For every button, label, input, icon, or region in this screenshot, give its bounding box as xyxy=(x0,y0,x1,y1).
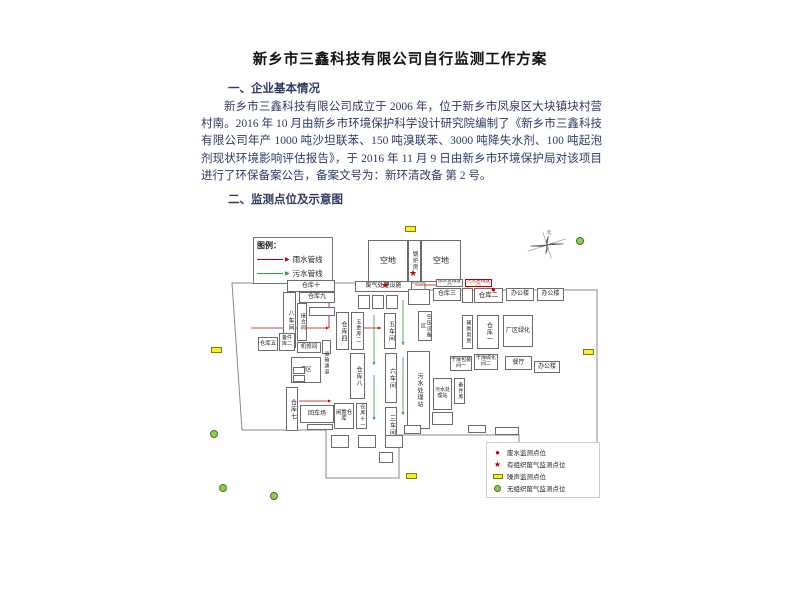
pipe-legend: 图例： ▶雨水管线▶污水管线 xyxy=(253,237,333,284)
building-box: 接合间 xyxy=(297,303,307,341)
building-box: 仓库七 xyxy=(286,387,298,431)
noise-point-marker xyxy=(583,349,594,355)
doc-title: 新乡市三鑫科技有限公司自行监测工作方案 xyxy=(0,48,800,69)
paragraph-body: 新乡市三鑫科技有限公司成立于 2006 年，位于新乡市凤泉区大块镇块村营村南。2… xyxy=(201,99,602,185)
building-box: 空地 xyxy=(421,240,461,282)
pipe-arrow-icon: ▶ xyxy=(285,270,290,277)
fugitive-gas-point-marker xyxy=(219,484,227,492)
pipe-legend-item: ▶污水管线 xyxy=(257,266,329,280)
fugitive-legend-icon xyxy=(494,485,501,492)
building-box: 仓库十一 xyxy=(356,403,367,429)
building-box: 空地 xyxy=(368,240,408,282)
dot-legend-icon: ● xyxy=(495,448,500,457)
building-box: 办公楼 xyxy=(537,288,564,301)
small-unlabeled-box xyxy=(385,435,403,448)
building-box: 闲置仓库 xyxy=(334,403,354,429)
small-unlabeled-box xyxy=(358,295,370,309)
noise-legend-icon xyxy=(493,474,503,479)
small-unlabeled-box xyxy=(432,412,453,425)
small-unlabeled-box xyxy=(293,375,305,382)
building-box: 仓库八 xyxy=(350,353,365,399)
monitoring-legend-label: 无组织废气监测点位 xyxy=(507,483,566,493)
wastewater-point-marker: ● xyxy=(491,286,496,294)
building-box: 机修间 xyxy=(297,342,321,353)
pipe-legend-item: ▶雨水管线 xyxy=(257,252,329,266)
building-box: 干燥硫化间二 xyxy=(474,354,498,370)
building-box: 运输通道 xyxy=(321,335,330,391)
building-box: 污水处理站 xyxy=(407,351,430,429)
svg-text:北: 北 xyxy=(546,229,551,236)
pipe-line-swatch xyxy=(257,273,283,274)
monitoring-legend-label: 废水监测点位 xyxy=(507,447,546,457)
section-heading-2: 二、监测点位及示意图 xyxy=(228,191,343,207)
small-unlabeled-box xyxy=(331,435,349,448)
building-box: 备件库二 xyxy=(279,333,295,351)
pipe-legend-title: 图例： xyxy=(257,240,329,251)
building-box: 仓库二 xyxy=(474,288,503,303)
building-box: 办公楼 xyxy=(506,288,534,301)
monitoring-legend-item: 噪声监测点位 xyxy=(491,470,595,482)
site-plan: 图例： ▶雨水管线▶污水管线 北 ●废水监测点位★有组织废气监测点位噪声监测点位… xyxy=(203,215,600,507)
building-box: 辅助用房 xyxy=(462,315,473,349)
organized-gas-point-marker: ★ xyxy=(409,269,417,278)
building-box: 雨水总排放口 xyxy=(436,279,463,287)
small-unlabeled-box xyxy=(468,425,486,433)
building-box: 五金库二 xyxy=(351,312,364,350)
small-unlabeled-box xyxy=(358,435,376,448)
document-page: 新乡市三鑫科技有限公司自行监测工作方案 一、企业基本情况 新乡市三鑫科技有限公司… xyxy=(0,0,800,600)
small-unlabeled-box xyxy=(462,288,473,303)
small-unlabeled-box xyxy=(293,367,305,374)
pipe-line-swatch xyxy=(257,259,283,260)
building-box: 仓库三 xyxy=(433,288,461,301)
building-box: 干燥包装间一 xyxy=(450,356,472,371)
monitoring-legend-item: ●废水监测点位 xyxy=(491,446,595,458)
small-unlabeled-box xyxy=(307,424,333,430)
building-box: 污水总排放口 xyxy=(465,279,492,287)
building-box: 仓库九 xyxy=(299,292,335,303)
small-unlabeled-box xyxy=(386,295,398,309)
monitoring-legend-item: ★有组织废气监测点位 xyxy=(491,458,595,470)
fugitive-gas-point-marker xyxy=(576,237,584,245)
small-unlabeled-box xyxy=(379,452,393,463)
small-unlabeled-box xyxy=(404,425,421,434)
building-box: 回车场 xyxy=(300,405,334,423)
pipe-legend-label: 雨水管线 xyxy=(293,254,323,265)
building-box: 污水处理站 xyxy=(433,378,452,410)
building-box: 厂区绿化 xyxy=(503,315,533,347)
monitoring-legend: ●废水监测点位★有组织废气监测点位噪声监测点位无组织废气监测点位 xyxy=(486,442,600,498)
monitoring-legend-item: 无组织废气监测点位 xyxy=(491,482,595,494)
small-unlabeled-box xyxy=(372,295,384,309)
building-box: 备件库 xyxy=(454,378,465,404)
small-unlabeled-box xyxy=(309,307,335,316)
small-unlabeled-box xyxy=(495,427,519,435)
building-box: 仓库五 xyxy=(258,337,278,351)
monitoring-legend-label: 噪声监测点位 xyxy=(507,471,546,481)
building-box: 仓库一 xyxy=(477,315,499,349)
building-box: 仓库十 xyxy=(287,280,335,292)
fugitive-gas-point-marker xyxy=(210,430,218,438)
pipe-legend-label: 污水管线 xyxy=(293,268,323,279)
building-box: 仓库四 xyxy=(336,312,349,350)
noise-point-marker xyxy=(211,347,222,353)
building-box: 六车间 xyxy=(385,353,397,403)
section-heading-1: 一、企业基本情况 xyxy=(228,80,320,96)
building-box: 办公楼 xyxy=(534,361,560,373)
building-box: 五车间 xyxy=(384,313,396,349)
fugitive-gas-point-marker xyxy=(270,492,278,500)
monitoring-legend-label: 有组织废气监测点位 xyxy=(507,459,566,469)
star-legend-icon: ★ xyxy=(494,460,501,469)
organized-gas-point-marker: ★ xyxy=(381,281,389,290)
building-box: 餐厅 xyxy=(505,356,532,370)
compass-north-icon: 北 xyxy=(525,227,569,261)
noise-point-marker xyxy=(406,473,417,479)
building-box: 空压设备区 xyxy=(418,311,432,341)
pipe-arrow-icon: ▶ xyxy=(285,256,290,263)
small-unlabeled-box xyxy=(408,289,430,305)
noise-point-marker xyxy=(405,226,416,232)
